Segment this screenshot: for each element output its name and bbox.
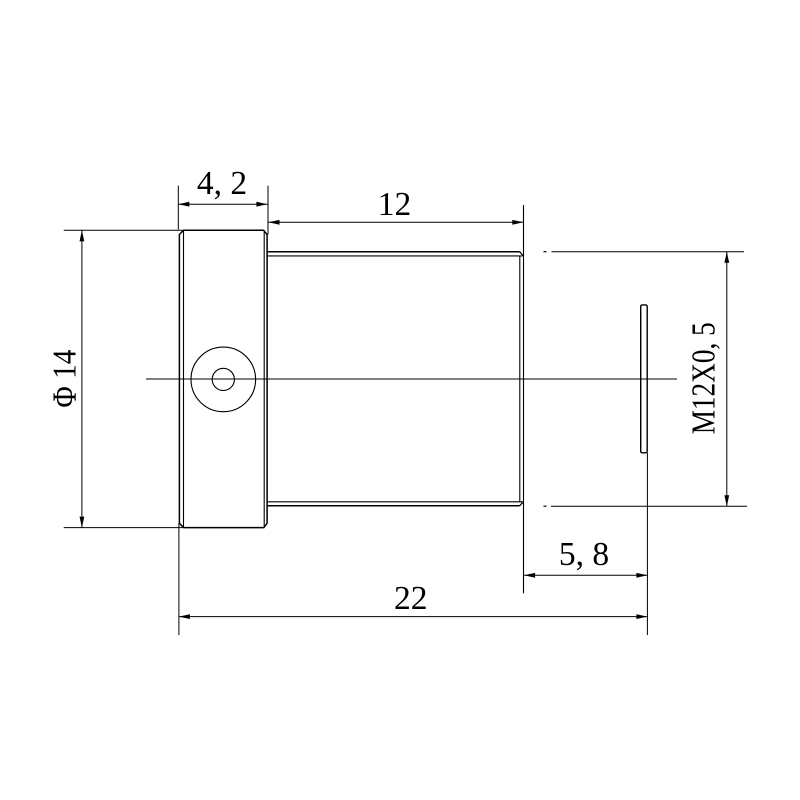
svg-text:Φ 14: Φ 14	[46, 349, 83, 407]
svg-text:M12X0, 5: M12X0, 5	[686, 322, 723, 434]
svg-text:12: 12	[378, 186, 412, 223]
svg-text:22: 22	[394, 580, 428, 617]
svg-text:4, 2: 4, 2	[197, 165, 247, 202]
svg-text:5, 8: 5, 8	[559, 536, 609, 573]
